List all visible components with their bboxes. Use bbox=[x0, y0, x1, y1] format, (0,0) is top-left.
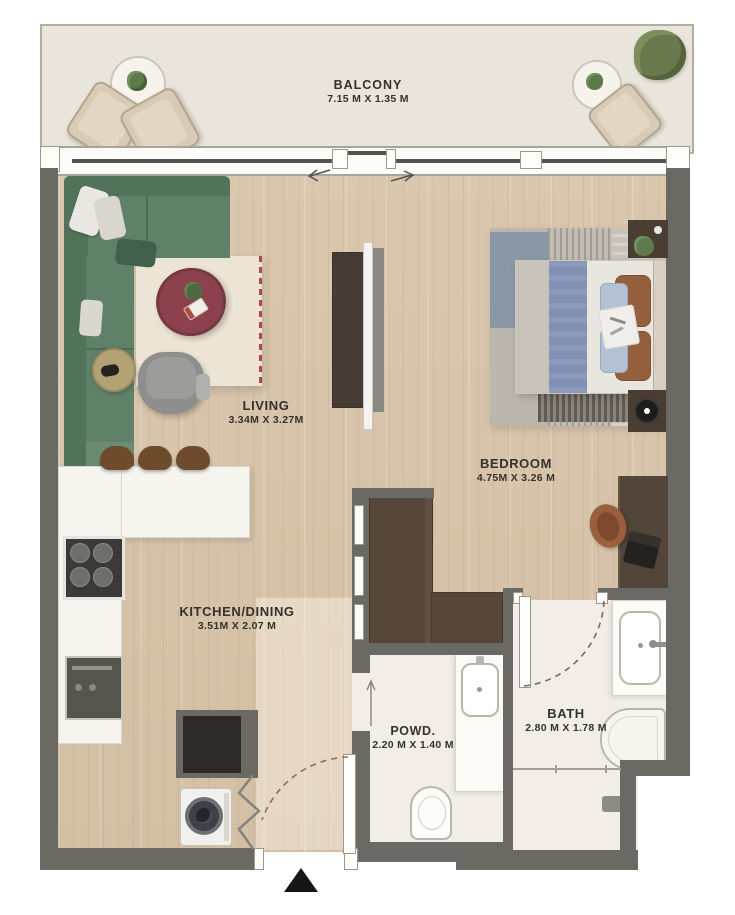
powder-door-indicator bbox=[367, 681, 375, 726]
entrance-marker-arrow bbox=[284, 868, 318, 892]
entry-door-arc bbox=[262, 757, 348, 820]
window-slide-arrow-left bbox=[309, 170, 330, 181]
bath-label: BATH 2.80 M X 1.78 M bbox=[525, 706, 607, 734]
powder-label: POWD. 2.20 M X 1.40 M bbox=[372, 724, 454, 751]
floor-plan: BALCONY 7.15 M X 1.35 M bbox=[0, 0, 735, 915]
plan-annotations bbox=[0, 0, 735, 915]
living-label: LIVING 3.34M X 3.27M bbox=[228, 398, 303, 426]
balcony-label: BALCONY 7.15 M X 1.35 M bbox=[327, 78, 409, 105]
window-slide-arrow-right bbox=[391, 171, 413, 181]
shower-screen-line bbox=[513, 765, 621, 773]
bath-door-arc bbox=[524, 601, 604, 686]
bifold-door bbox=[239, 775, 259, 849]
bedroom-label: BEDROOM 4.75M X 3.26 M bbox=[477, 456, 555, 484]
kitchen-label: KITCHEN/DINING 3.51M X 2.07 M bbox=[179, 604, 294, 632]
